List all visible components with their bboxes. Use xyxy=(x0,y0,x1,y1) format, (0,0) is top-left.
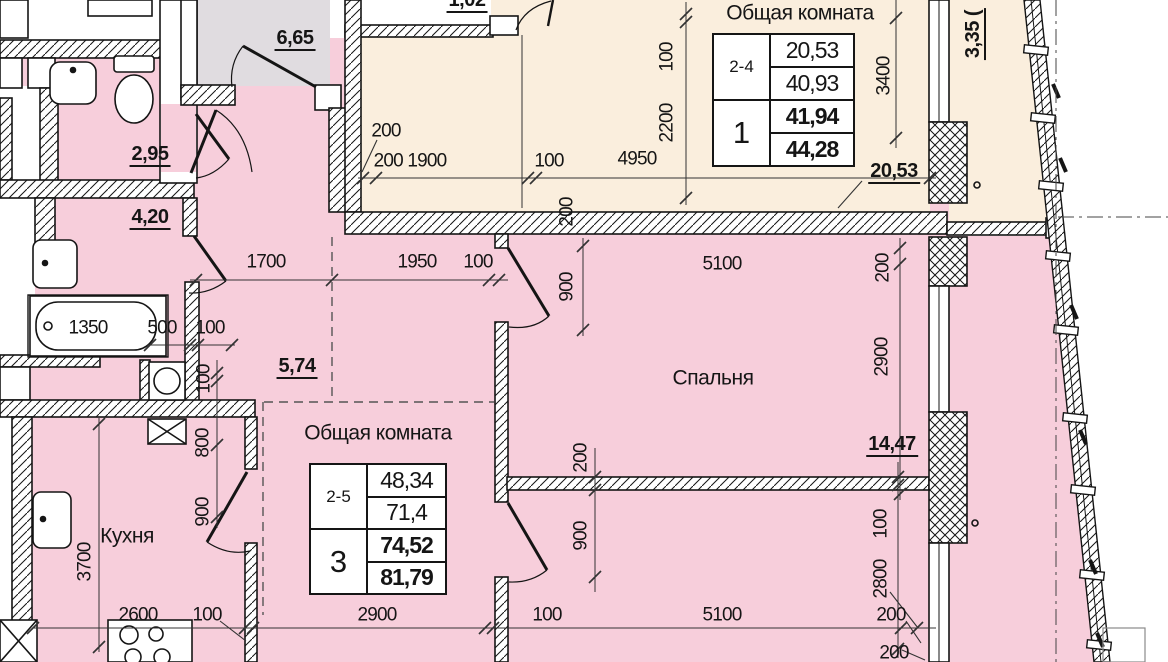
dim-label: 500 xyxy=(147,319,176,338)
apartment3-area-row: 48,34 xyxy=(368,465,445,498)
dim-label: 2800 xyxy=(872,559,891,598)
room-label-living3: Общая комната xyxy=(304,423,451,444)
dim-label: 100 xyxy=(534,152,563,171)
dim-label: 4950 xyxy=(617,150,656,169)
apartment3-number: 3 xyxy=(311,530,366,593)
dim-label: 100 xyxy=(532,606,561,625)
floor-plan: 200 200 1900 100 4950 1700 1950 100 5100… xyxy=(0,0,1168,662)
appliance-icon xyxy=(33,240,77,288)
room-label-living1: Общая комната xyxy=(726,3,873,24)
dim-label: 900 xyxy=(572,521,591,550)
dim-label: 100 xyxy=(658,42,677,71)
room-label-bedroom: Спальня xyxy=(673,368,754,389)
area-label-corridor: 4,20 xyxy=(130,206,171,230)
dim-label: 900 xyxy=(558,272,577,301)
dim-label: 5100 xyxy=(702,255,741,274)
dim-label: 200 xyxy=(371,122,400,141)
apartment3-range: 2-5 xyxy=(311,465,366,530)
dim-label: 200 xyxy=(876,606,905,625)
dim-label: 1700 xyxy=(246,253,285,272)
apartment3-area-row: 81,79 xyxy=(368,563,445,594)
dim-label: 5100 xyxy=(702,606,741,625)
toilet-icon xyxy=(114,56,154,123)
apartment1-area-row: 40,93 xyxy=(771,68,853,101)
apartment1-area-row: 20,53 xyxy=(771,35,853,68)
dim-label: 100 xyxy=(872,509,891,538)
dim-label: 200 xyxy=(879,644,908,662)
area-label-hallway: 5,74 xyxy=(277,355,318,379)
dim-label: 3700 xyxy=(76,542,95,581)
dim-label: 2200 xyxy=(658,103,677,142)
sink-icon xyxy=(50,62,96,104)
dim-label: 100 xyxy=(195,364,214,393)
apartment3-area-row: 71,4 xyxy=(368,498,445,531)
area-label-bedroom: 14,47 xyxy=(866,433,918,457)
apartment1-area-table: 2-4 1 20,53 40,93 41,94 44,28 xyxy=(712,33,855,167)
washing-machine-icon xyxy=(149,362,185,400)
dim-label: 200 1900 xyxy=(374,152,447,171)
dim-label: 2600 xyxy=(118,606,157,625)
dim-label: 900 xyxy=(194,497,213,526)
apartment1-range: 2-4 xyxy=(714,35,769,101)
dim-label: 200 xyxy=(558,197,577,226)
apartment3-area-table: 2-5 3 48,34 71,4 74,52 81,79 xyxy=(309,463,447,595)
area-label-storage: 1,02 xyxy=(447,0,488,13)
apartment1-area-row: 41,94 xyxy=(771,101,853,134)
dim-label: 2900 xyxy=(357,606,396,625)
dim-label: 1350 xyxy=(68,319,107,338)
area-label-bathroom: 2,95 xyxy=(130,143,171,167)
dim-label: 100 xyxy=(463,253,492,272)
apartment3-area-row: 74,52 xyxy=(368,530,445,563)
dim-label: 1950 xyxy=(397,253,436,272)
dim-label: 200 xyxy=(874,253,893,282)
area-label-stair-hall: 6,65 xyxy=(275,27,316,51)
area-label-balcony: 3,35 ( xyxy=(962,8,986,60)
apartment1-number: 1 xyxy=(714,101,769,165)
dim-label: 100 xyxy=(192,606,221,625)
kitchen-sink-icon xyxy=(33,492,71,548)
apartment1-area-row: 44,28 xyxy=(771,134,853,165)
dim-label: 200 xyxy=(572,443,591,472)
dim-label: 2900 xyxy=(873,337,892,376)
area-label-living1: 20,53 xyxy=(868,160,920,184)
dim-label: 100 xyxy=(195,319,224,338)
dim-label: 800 xyxy=(194,428,213,457)
stove-icon xyxy=(108,620,192,662)
dim-label: 3400 xyxy=(875,56,894,95)
room-label-kitchen: Кухня xyxy=(100,526,154,547)
shaft-x-icon xyxy=(0,620,37,662)
vent-shaft-icon xyxy=(148,419,186,444)
